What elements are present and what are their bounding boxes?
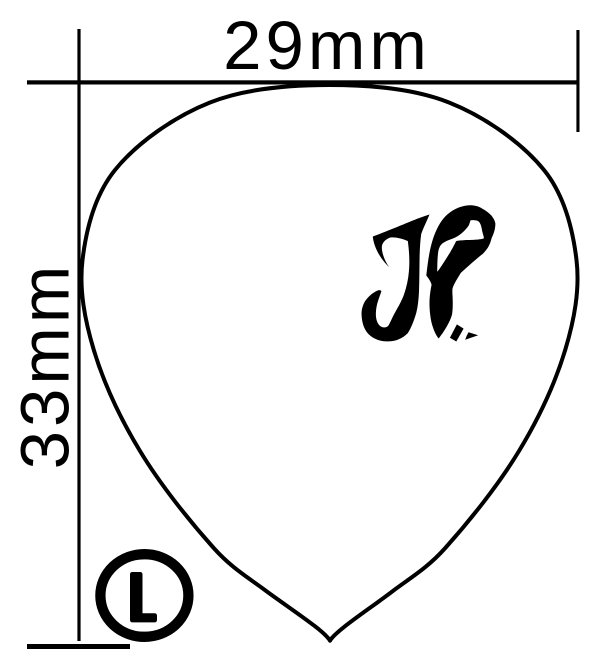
svg-text:29mm: 29mm bbox=[223, 7, 431, 84]
svg-text:33mm: 33mm bbox=[7, 262, 84, 470]
